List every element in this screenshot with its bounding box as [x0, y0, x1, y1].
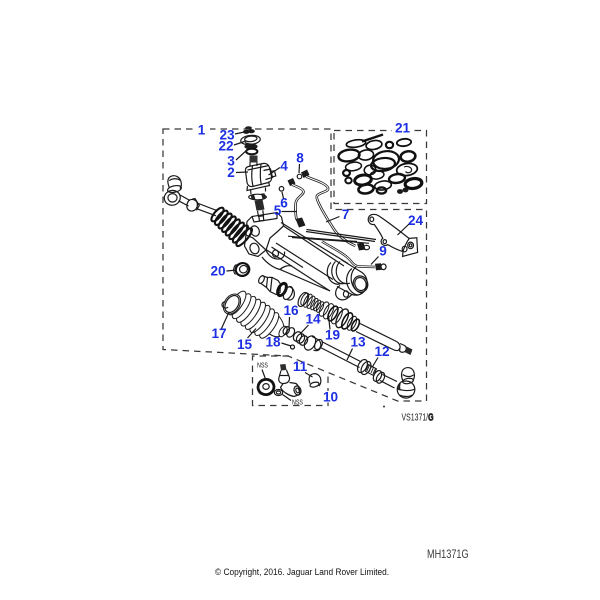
svg-text:9: 9 — [379, 244, 387, 259]
svg-text:NSS: NSS — [257, 361, 268, 370]
svg-text:20: 20 — [210, 264, 225, 279]
svg-text:13: 13 — [350, 335, 366, 350]
svg-text:18: 18 — [265, 335, 281, 350]
svg-text:15: 15 — [237, 337, 253, 352]
svg-text:19: 19 — [325, 328, 341, 343]
svg-text:14: 14 — [305, 312, 321, 327]
svg-text:21: 21 — [395, 121, 411, 136]
svg-text:4: 4 — [280, 159, 288, 174]
svg-text:1: 1 — [198, 123, 206, 138]
svg-text:5: 5 — [274, 203, 282, 218]
svg-text:VS1371/G: VS1371/G — [402, 413, 434, 424]
svg-text:6: 6 — [280, 196, 288, 211]
svg-text:22: 22 — [218, 139, 234, 154]
svg-text:16: 16 — [283, 303, 299, 318]
svg-text:2: 2 — [227, 165, 235, 180]
svg-text:8: 8 — [296, 151, 304, 166]
svg-text:10: 10 — [323, 390, 338, 405]
svg-text:7: 7 — [342, 207, 350, 222]
svg-text:NSS: NSS — [292, 398, 303, 407]
svg-text:17: 17 — [211, 326, 226, 341]
svg-text:11: 11 — [293, 359, 308, 374]
svg-text:12: 12 — [374, 344, 390, 359]
svg-text:24: 24 — [408, 213, 424, 228]
